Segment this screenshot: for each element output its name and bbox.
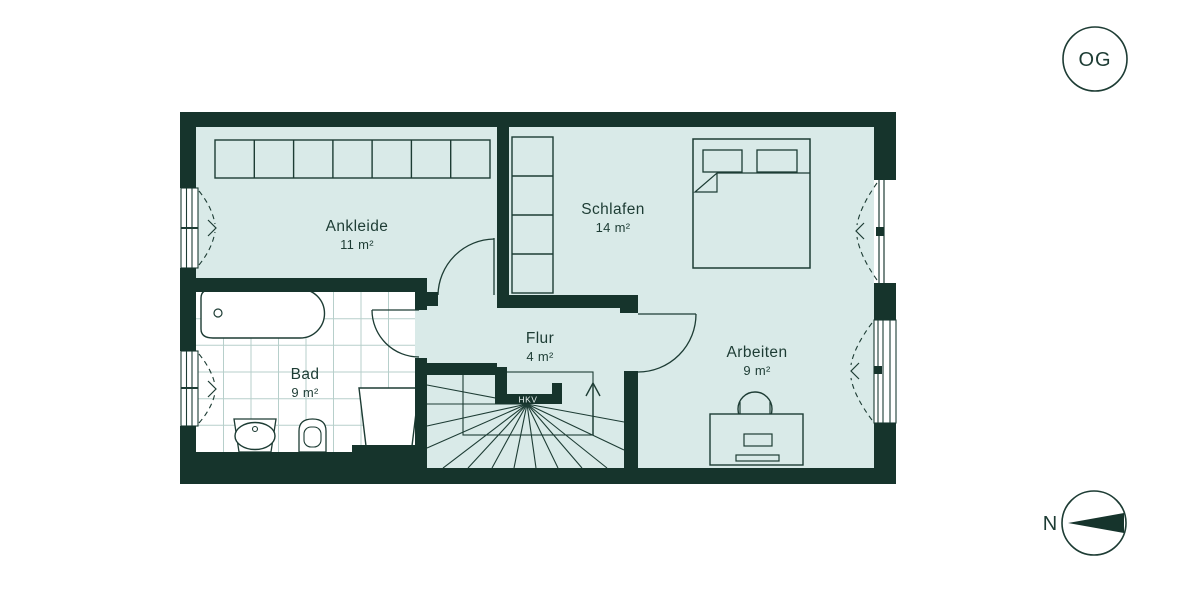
hkv-label: HKV	[519, 395, 538, 405]
floor-badge-label: OG	[1078, 49, 1111, 71]
room-label-flur: Flur	[526, 330, 554, 347]
room-area-flur: 4 m²	[526, 349, 554, 364]
floor-plan-canvas: Ankleide 11 m² Schlafen 14 m² Flur 4 m² …	[0, 0, 1200, 600]
window-arbeiten	[874, 320, 896, 423]
compass-north-label: N	[1043, 513, 1057, 535]
room-label-arbeiten: Arbeiten	[727, 344, 788, 361]
bathtub	[201, 289, 325, 338]
floor-badge: OG	[1063, 27, 1127, 91]
sink	[234, 419, 276, 452]
wardrobe	[215, 140, 490, 178]
room-area-arbeiten: 9 m²	[743, 363, 771, 378]
window-schlafen	[874, 180, 896, 283]
toilet	[299, 419, 326, 452]
shower-tray	[359, 388, 419, 446]
room-area-bad: 9 m²	[291, 385, 319, 400]
room-area-ankleide: 11 m²	[340, 237, 374, 252]
room-label-bad: Bad	[291, 366, 320, 383]
shelf	[512, 137, 553, 293]
room-area-schlafen: 14 m²	[596, 220, 631, 235]
room-label-ankleide: Ankleide	[326, 218, 389, 235]
window-ankleide	[181, 188, 198, 268]
bed	[693, 139, 810, 268]
room-label-schlafen: Schlafen	[581, 201, 645, 218]
desk	[710, 414, 803, 465]
window-bad	[181, 351, 198, 426]
